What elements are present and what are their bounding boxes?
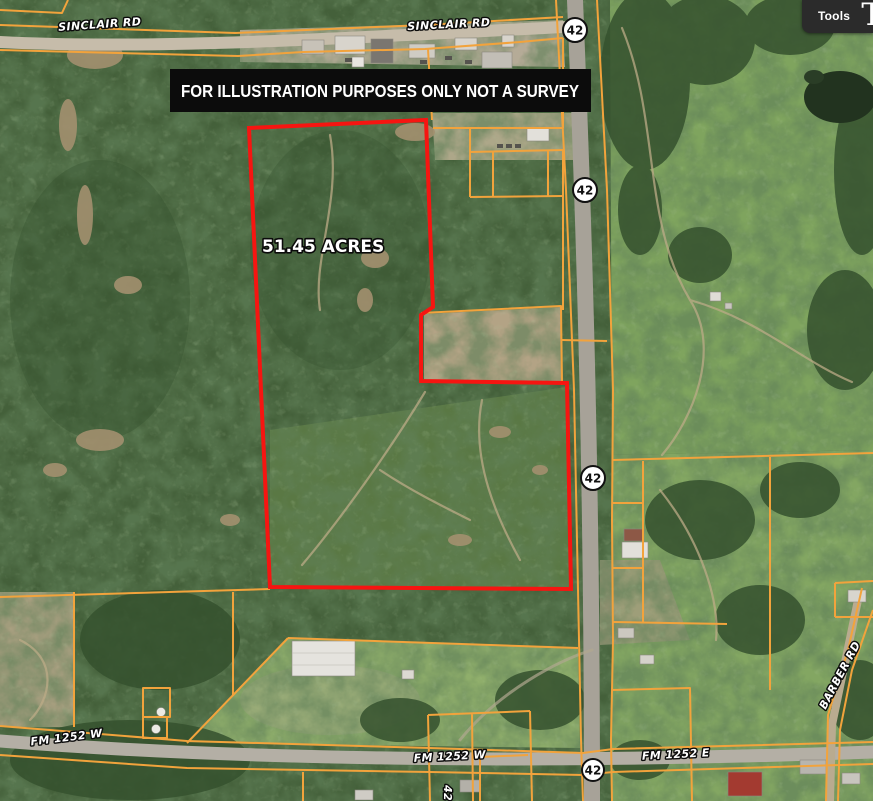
- road-label-county-road-42: 42: [441, 784, 454, 801]
- tools-label: Tools: [818, 9, 850, 23]
- highway-badge: 42: [563, 18, 587, 42]
- svg-text:42: 42: [577, 184, 594, 198]
- highway-badge: 42: [581, 466, 605, 490]
- map-canvas[interactable]: SINCLAIR RD SINCLAIR RD FM 1252 W FM 125…: [0, 0, 873, 801]
- svg-text:42: 42: [585, 764, 602, 778]
- tools-button[interactable]: Tools T: [802, 0, 873, 33]
- disclaimer-banner: FOR ILLUSTRATION PURPOSES ONLY NOT A SUR…: [170, 69, 591, 112]
- app-logo-icon: T: [861, 0, 873, 33]
- highway-badge: 42: [573, 178, 597, 202]
- disclaimer-text: FOR ILLUSTRATION PURPOSES ONLY NOT A SUR…: [181, 81, 579, 101]
- svg-text:42: 42: [585, 472, 602, 486]
- svg-text:42: 42: [567, 24, 584, 38]
- satellite-terrain: [0, 0, 873, 801]
- satellite-map: SINCLAIR RD SINCLAIR RD FM 1252 W FM 125…: [0, 0, 873, 801]
- acreage-label: 51.45 ACRES: [262, 237, 384, 257]
- highway-badge: 42: [582, 759, 604, 781]
